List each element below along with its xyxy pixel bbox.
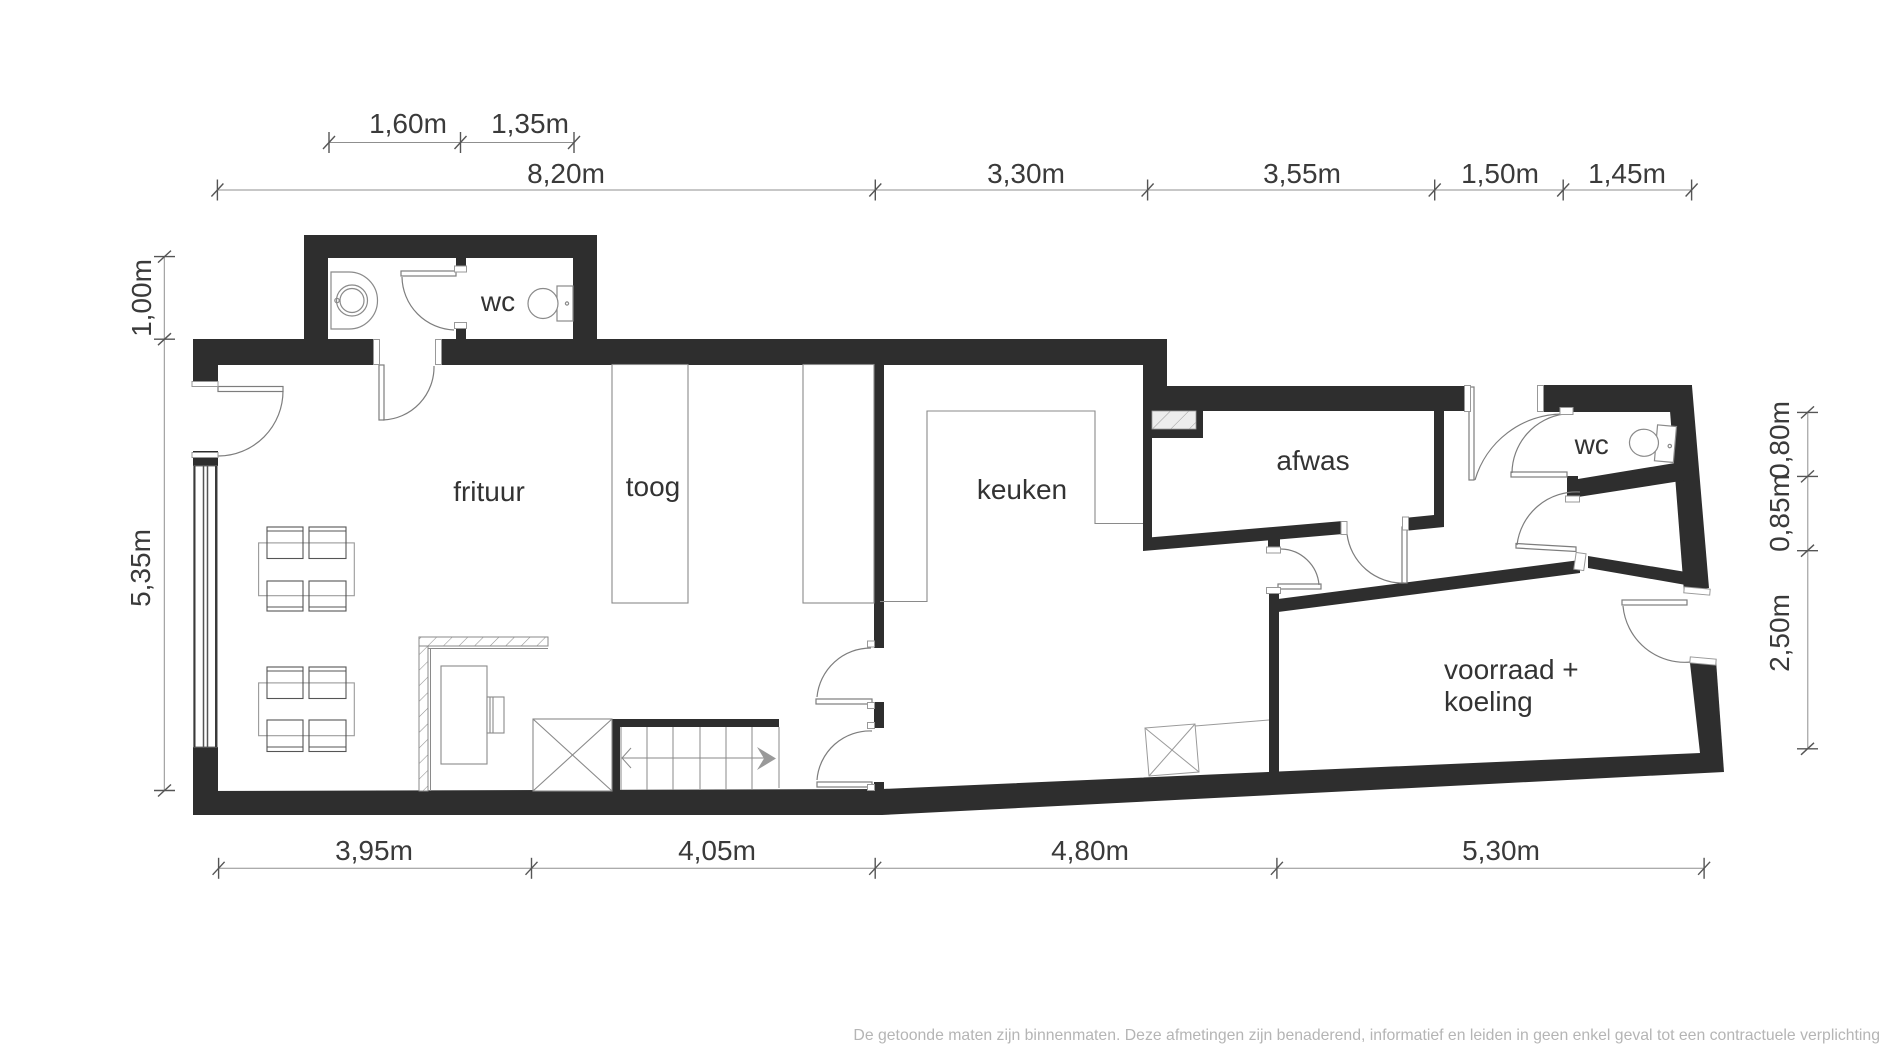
svg-text:keuken: keuken xyxy=(977,474,1067,505)
svg-text:2,50m: 2,50m xyxy=(1764,594,1795,672)
svg-text:afwas: afwas xyxy=(1276,445,1349,476)
svg-text:3,95m: 3,95m xyxy=(335,835,413,866)
svg-text:1,50m: 1,50m xyxy=(1461,158,1539,189)
svg-text:4,80m: 4,80m xyxy=(1051,835,1129,866)
svg-text:koeling: koeling xyxy=(1444,686,1533,717)
svg-text:wc: wc xyxy=(1574,429,1609,460)
svg-text:1,60m: 1,60m xyxy=(369,108,447,139)
svg-text:1,35m: 1,35m xyxy=(491,108,569,139)
svg-text:4,05m: 4,05m xyxy=(678,835,756,866)
svg-text:1,00m: 1,00m xyxy=(126,259,157,337)
svg-text:0,80m: 0,80m xyxy=(1764,401,1795,479)
svg-text:5,30m: 5,30m xyxy=(1462,835,1540,866)
svg-text:De getoonde maten zijn binnenm: De getoonde maten zijn binnenmaten. Deze… xyxy=(853,1027,1880,1044)
svg-text:5,35m: 5,35m xyxy=(125,529,156,607)
svg-text:3,30m: 3,30m xyxy=(987,158,1065,189)
svg-text:voorraad +: voorraad + xyxy=(1444,654,1579,685)
svg-text:8,20m: 8,20m xyxy=(527,158,605,189)
svg-text:3,55m: 3,55m xyxy=(1263,158,1341,189)
svg-text:wc: wc xyxy=(480,286,515,317)
svg-text:toog: toog xyxy=(626,471,681,502)
svg-text:0,85m: 0,85m xyxy=(1764,474,1795,552)
svg-text:frituur: frituur xyxy=(453,476,525,507)
svg-text:1,45m: 1,45m xyxy=(1588,158,1666,189)
